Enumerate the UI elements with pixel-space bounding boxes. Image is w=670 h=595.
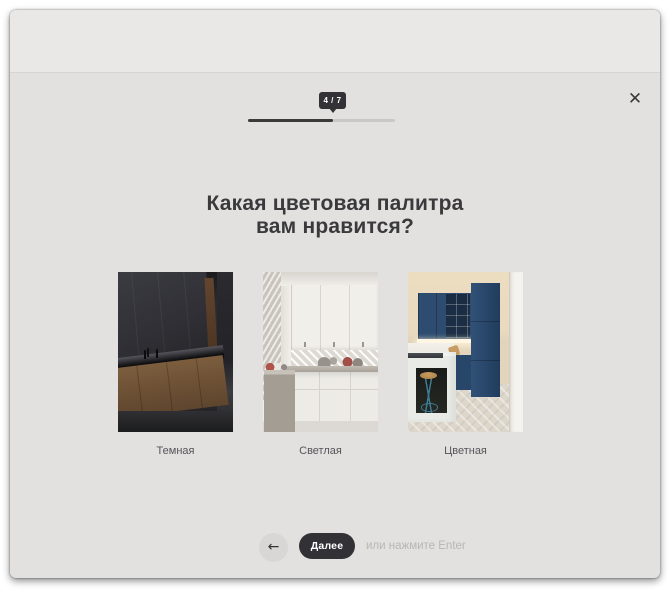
- art-layer: [281, 272, 290, 371]
- progress-bar: [248, 119, 395, 122]
- option-card-colorful[interactable]: [408, 272, 523, 432]
- option-card-light[interactable]: [263, 272, 378, 432]
- quiz-modal: ✕ 4 / 7 Какая цветовая палитра вам нрави…: [10, 10, 660, 578]
- art-layer: [288, 389, 378, 390]
- art-layer: [446, 294, 470, 337]
- art-layer: [408, 353, 443, 359]
- modal-header-strip: [10, 10, 660, 73]
- question-title: Какая цветовая палитра вам нравится?: [10, 192, 660, 238]
- art-layer: [265, 363, 293, 370]
- art-layer: [471, 283, 500, 397]
- dark-kitchen-photo: [118, 272, 233, 432]
- art-layer: [291, 285, 378, 351]
- page: ✕ 4 / 7 Какая цветовая палитра вам нрави…: [0, 0, 670, 595]
- question-title-line-2: вам нравится?: [10, 215, 660, 238]
- progress-step-label: 4 / 7: [323, 96, 341, 105]
- art-layer: [156, 349, 158, 358]
- progress-bar-fill: [248, 119, 333, 122]
- art-layer: [420, 372, 437, 379]
- colorful-kitchen-photo: [408, 272, 523, 432]
- question-title-line-1: Какая цветовая палитра: [10, 192, 660, 215]
- art-layer: [509, 272, 523, 432]
- light-kitchen-photo: [263, 272, 378, 432]
- enter-hint: или нажмите Enter: [366, 539, 466, 553]
- option-label-light: Светлая: [263, 445, 378, 457]
- back-arrow-icon: ←: [268, 539, 280, 555]
- close-icon: ✕: [628, 89, 642, 109]
- option-card-dark[interactable]: [118, 272, 233, 432]
- art-layer: [421, 403, 438, 411]
- option-label-colorful: Цветная: [408, 445, 523, 457]
- art-layer: [291, 342, 378, 347]
- art-layer: [118, 411, 233, 432]
- next-button[interactable]: Далее: [299, 533, 355, 559]
- art-layer: [264, 370, 295, 432]
- progress-tooltip: 4 / 7: [319, 92, 346, 109]
- option-label-dark: Темная: [118, 445, 233, 457]
- back-button[interactable]: ←: [259, 533, 288, 562]
- art-layer: [288, 372, 378, 422]
- tooltip-pointer: [329, 108, 337, 113]
- close-button[interactable]: ✕: [623, 87, 647, 111]
